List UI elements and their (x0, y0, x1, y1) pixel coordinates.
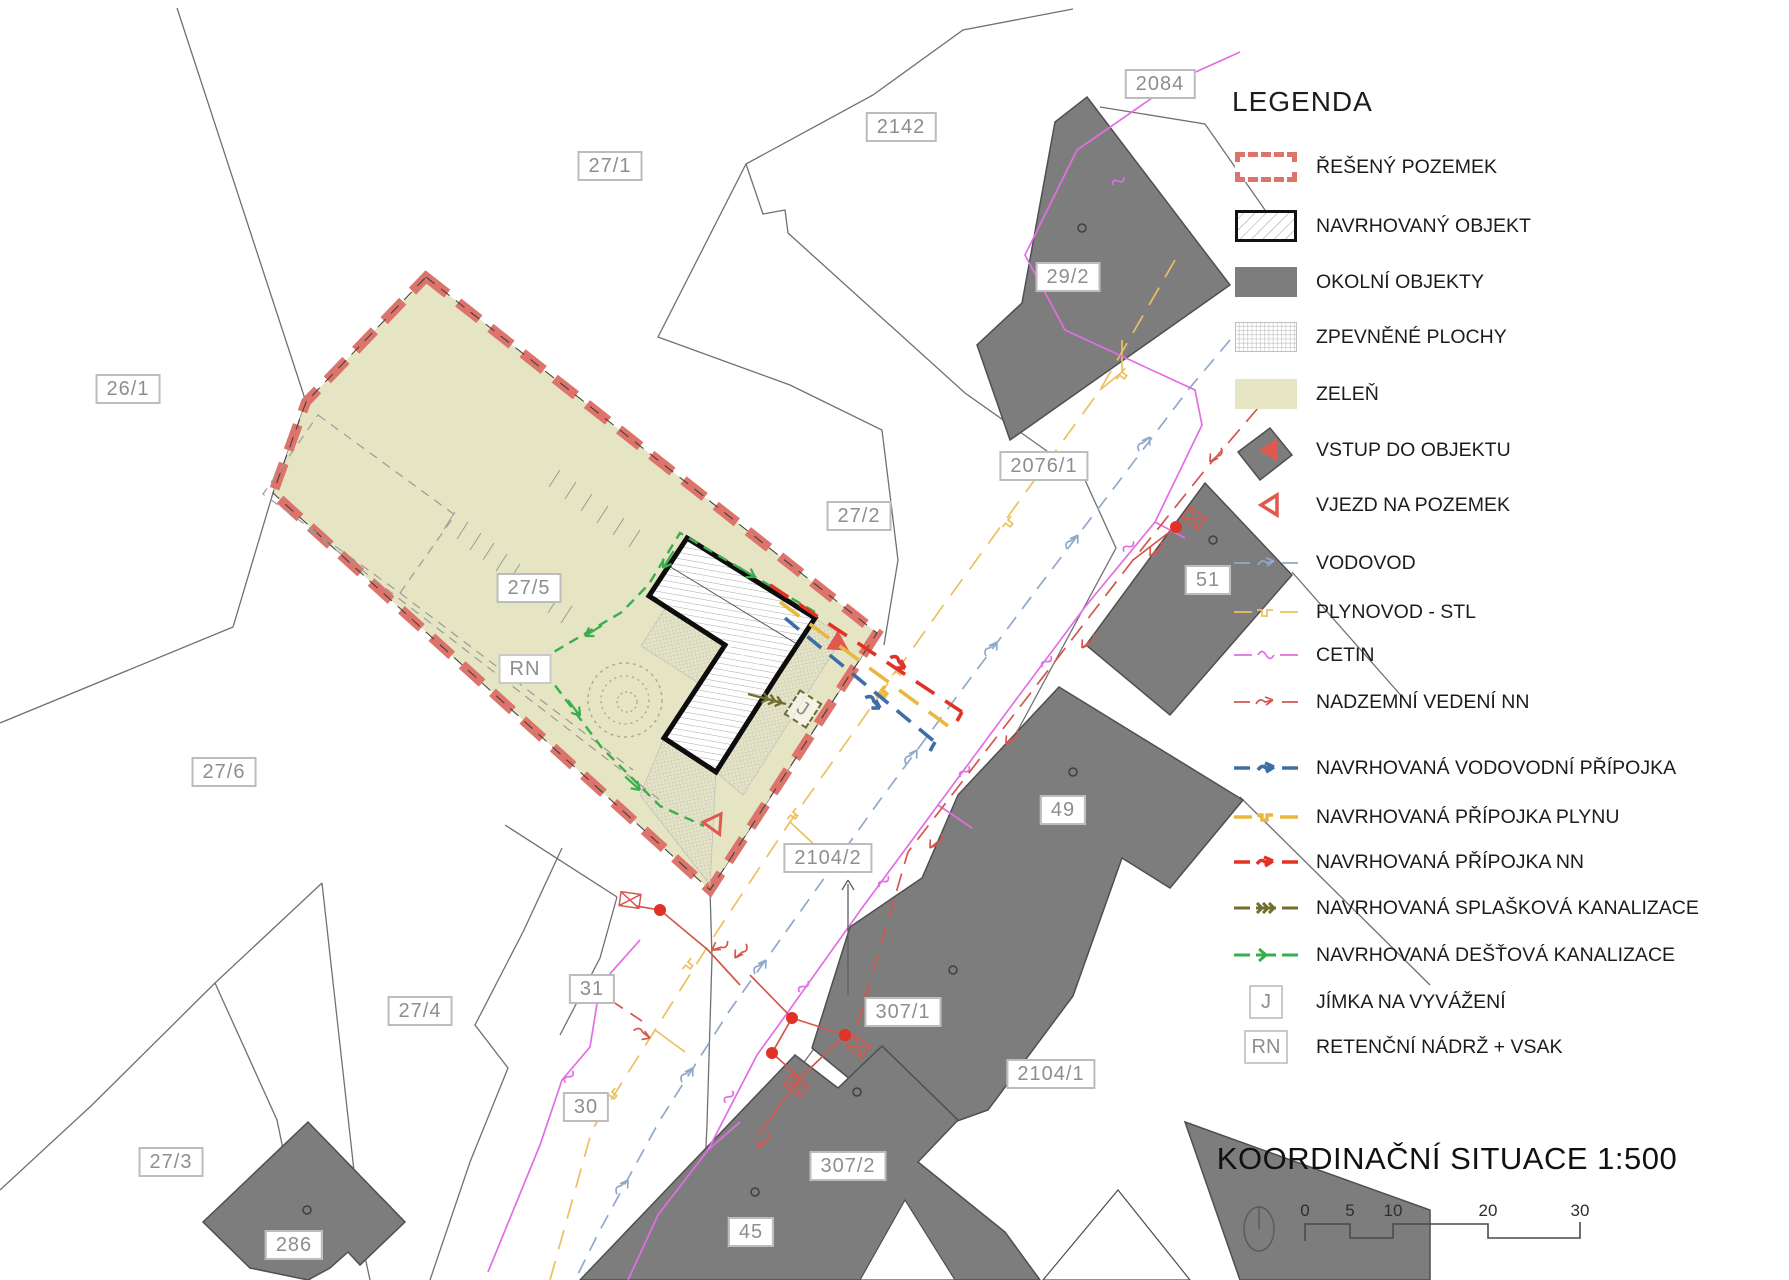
nn-proposed-icon (1232, 850, 1300, 874)
parcel-label-49: 49 (1040, 795, 1086, 825)
nn-overhead-icon (1232, 690, 1300, 714)
parcel-label-2076-1: 2076/1 (999, 451, 1088, 481)
legend-item-sewer-proposed: NAVRHOVANÁ SPLAŠKOVÁ KANALIZACE (1232, 888, 1699, 928)
parcel-label-307-1: 307/1 (864, 997, 941, 1027)
legend-item-retention: RN RETENČNÍ NÁDRŽ + VSAK (1232, 1027, 1563, 1067)
parcel-label-45: 45 (728, 1217, 774, 1247)
legend-item-sump: J JÍMKA NA VYVÁŽENÍ (1232, 982, 1506, 1022)
legend-item-nn-proposed: NAVRHOVANÁ PŘÍPOJKA NN (1232, 842, 1584, 882)
solved-parcel (273, 277, 877, 890)
scale-tick-5: 5 (1345, 1201, 1354, 1221)
paved-areas-swatch (1235, 322, 1297, 352)
legend-item-cetin: CETIN (1232, 635, 1375, 675)
legend-item-driveway-entrance: VJEZD NA POZEMEK (1232, 485, 1510, 525)
legend-item-green-area: ZELEŇ (1232, 374, 1379, 414)
parcel-label-2142: 2142 (866, 112, 937, 142)
parcel-label-51: 51 (1185, 565, 1231, 595)
parcel-label-2084: 2084 (1125, 69, 1196, 99)
parcel-label-27-4: 27/4 (388, 996, 453, 1026)
gas-existing-icon (1232, 600, 1300, 624)
legend-item-gas-existing: PLYNOVOD - STL (1232, 592, 1476, 632)
legend-title: LEGENDA (1232, 86, 1373, 118)
water-existing-icon (1232, 551, 1300, 575)
parcel-label-27-3: 27/3 (139, 1147, 204, 1177)
legend-item-nn-overhead: NADZEMNÍ VEDENÍ NN (1232, 682, 1529, 722)
parcel-label-286: 286 (265, 1230, 323, 1260)
sewer-proposed-icon (1232, 896, 1300, 920)
parcel-label-27-1: 27/1 (578, 151, 643, 181)
parcel-label-27-5: 27/5 (497, 573, 562, 603)
solved-parcel-swatch (1235, 152, 1297, 182)
site-plan-canvas (0, 0, 1789, 1280)
scale-tick-20: 20 (1479, 1201, 1498, 1221)
parcel-label-27-2: 27/2 (827, 501, 892, 531)
driveway-triangle-icon (1235, 490, 1297, 520)
entrance-triangle-icon (1235, 435, 1297, 465)
legend-item-solved-parcel: ŘEŠENÝ POZEMEK (1232, 147, 1497, 187)
surrounding-buildings-swatch (1235, 267, 1297, 297)
retention-tank-marker: RN (499, 654, 552, 684)
sump-symbol-box: J (1249, 985, 1283, 1019)
proposed-building-swatch (1235, 210, 1297, 242)
drawing-title: KOORDINAČNÍ SITUACE 1:500 (1217, 1141, 1677, 1177)
water-proposed-icon (1232, 756, 1300, 780)
legend-item-building-entrance: VSTUP DO OBJEKTU (1232, 430, 1511, 470)
parcel-label-30: 30 (563, 1092, 609, 1122)
parcel-label-307-2: 307/2 (809, 1151, 886, 1181)
legend-item-water-existing: VODOVOD (1232, 543, 1416, 583)
legend-item-storm-proposed: NAVRHOVANÁ DEŠŤOVÁ KANALIZACE (1232, 935, 1675, 975)
parcel-label-31: 31 (569, 974, 615, 1004)
retention-symbol-box: RN (1244, 1030, 1288, 1064)
green-area-swatch (1235, 379, 1297, 409)
parcel-label-29-2: 29/2 (1036, 262, 1101, 292)
cetin-icon (1232, 643, 1300, 667)
coordination-situation-drawing: 26/1 27/1 2142 2084 29/2 2076/1 27/2 51 … (0, 0, 1789, 1280)
parcel-label-2104-2: 2104/2 (783, 843, 872, 873)
legend-item-surrounding-buildings: OKOLNÍ OBJEKTY (1232, 262, 1484, 302)
legend-item-water-proposed: NAVRHOVANÁ VODOVODNÍ PŘÍPOJKA (1232, 748, 1676, 788)
legend-item-paved-areas: ZPEVNĚNÉ PLOCHY (1232, 317, 1507, 357)
gas-proposed-icon (1232, 805, 1300, 829)
parcel-label-27-6: 27/6 (192, 757, 257, 787)
scale-tick-10: 10 (1384, 1201, 1403, 1221)
storm-proposed-icon (1232, 943, 1300, 967)
legend-item-gas-proposed: NAVRHOVANÁ PŘÍPOJKA PLYNU (1232, 797, 1619, 837)
parcel-label-26-1: 26/1 (96, 374, 161, 404)
scale-tick-30: 30 (1571, 1201, 1590, 1221)
parcel-label-2104-1: 2104/1 (1006, 1059, 1095, 1089)
legend-item-proposed-building: NAVRHOVANÝ OBJEKT (1232, 206, 1531, 246)
scale-tick-0: 0 (1300, 1201, 1309, 1221)
